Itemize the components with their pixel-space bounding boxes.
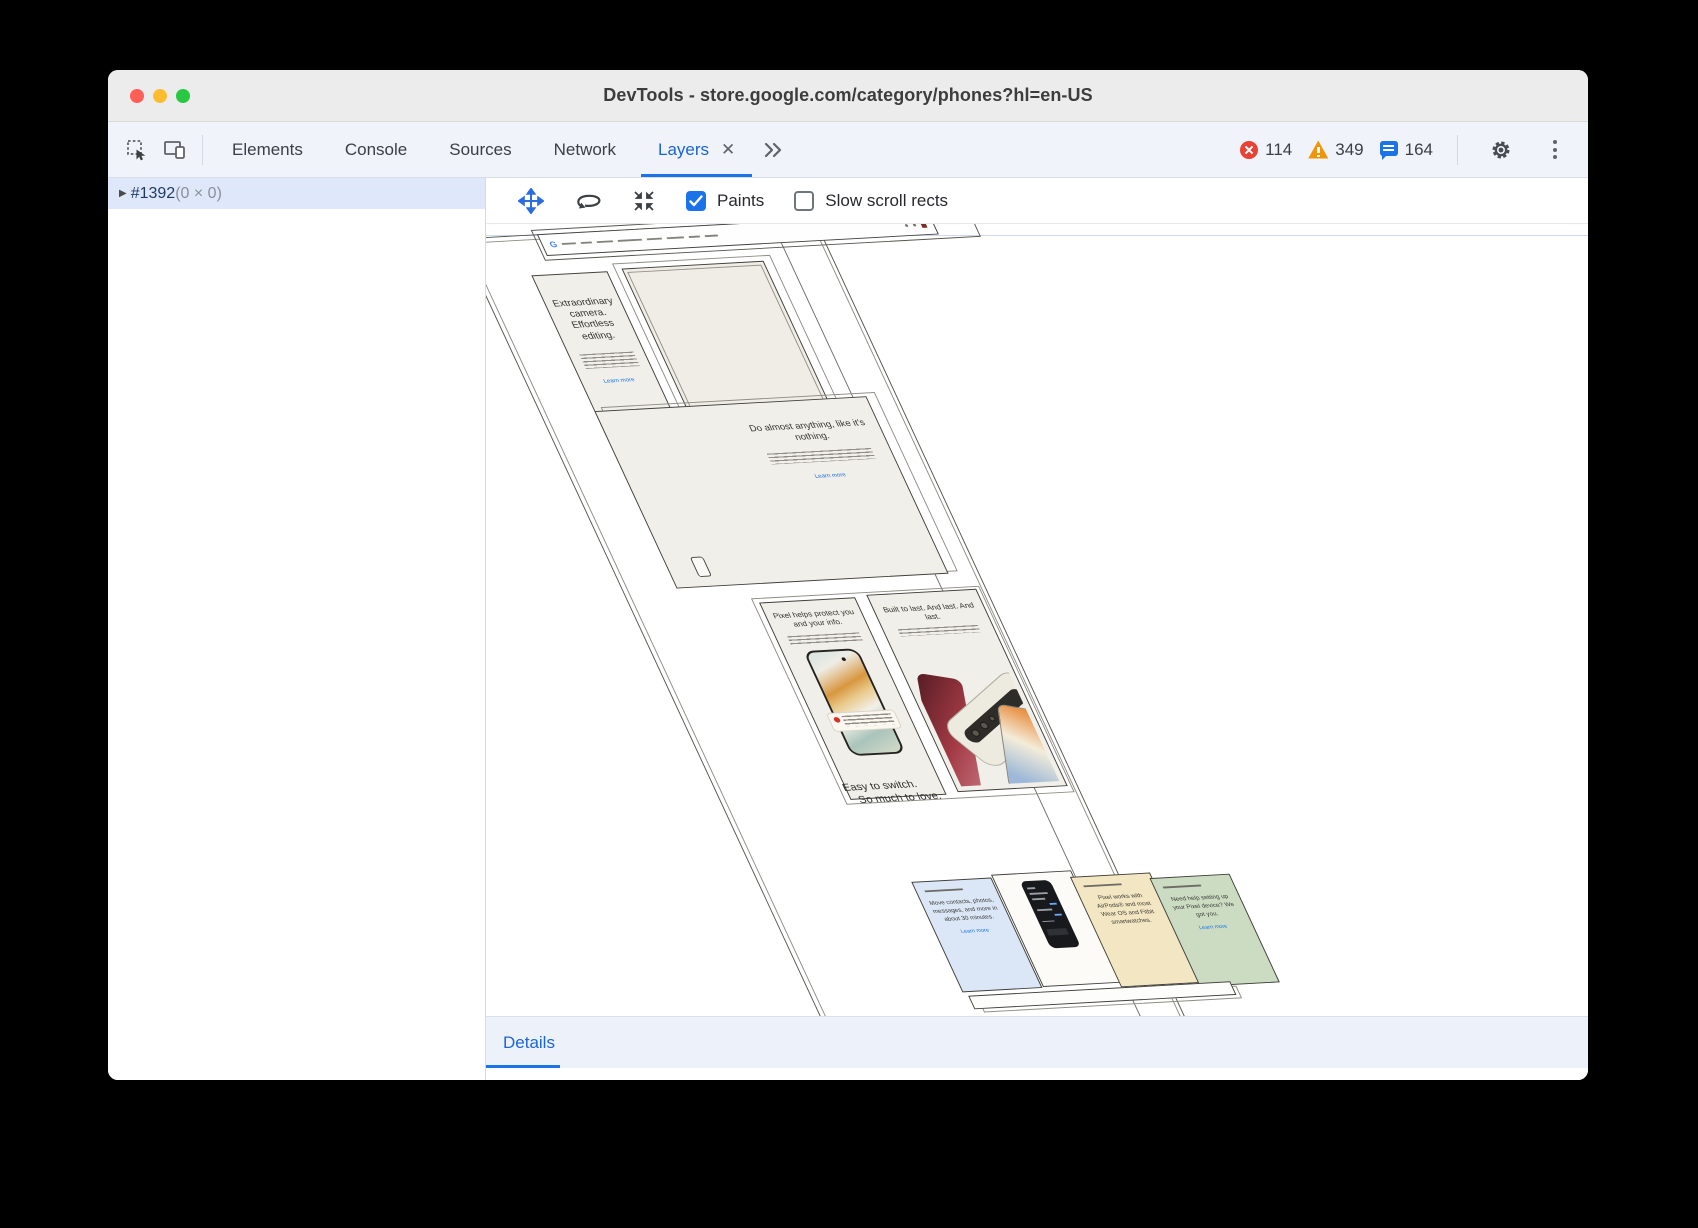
- window-title: DevTools - store.google.com/category/pho…: [603, 85, 1092, 106]
- built-card-bodytext: [897, 624, 980, 636]
- close-tab-icon[interactable]: ✕: [721, 140, 735, 160]
- message-icon: [1380, 141, 1398, 156]
- details-tab-underline: [486, 1065, 560, 1068]
- badges-divider: [1457, 135, 1458, 165]
- reset-view-icon[interactable]: [632, 189, 656, 213]
- minimize-window-button[interactable]: [153, 89, 167, 103]
- protect-card-heading: Pixel helps protect you and your info.: [770, 608, 862, 630]
- warning-count: 349: [1335, 140, 1363, 160]
- camera-card-link: Learn more: [587, 376, 652, 385]
- error-badge[interactable]: 114: [1240, 140, 1292, 160]
- transfer-phone-screen: [1020, 880, 1081, 949]
- layers-panel: ▶ #1392(0 × 0): [108, 178, 1588, 1080]
- layer-id: #1392: [131, 185, 176, 203]
- switch-green-body: Need help setting up your Pixel device? …: [1165, 893, 1242, 921]
- built-card-heading: Built to last. And last. And last.: [879, 601, 983, 624]
- error-count: 114: [1265, 140, 1292, 160]
- settings-gear-icon[interactable]: [1482, 131, 1520, 169]
- message-count: 164: [1405, 140, 1433, 160]
- avatar: [919, 224, 927, 228]
- device-toolbar-icon[interactable]: [156, 131, 194, 169]
- camera-card-bodytext: [579, 351, 640, 368]
- switch-blue-body: Move contacts, photos, messages, and mor…: [927, 897, 1004, 925]
- alert-dot-icon: [833, 717, 842, 723]
- security-notification: [825, 709, 902, 732]
- error-icon: [1240, 141, 1258, 159]
- title-bar: DevTools - store.google.com/category/pho…: [108, 70, 1588, 122]
- tab-console[interactable]: Console: [324, 122, 428, 177]
- details-bar: Details: [486, 1016, 1588, 1068]
- switch-blue-minihead: [924, 888, 963, 892]
- switch-green-link: Learn more: [1179, 923, 1248, 934]
- layers-3d-canvas[interactable]: G Extraordinary camer: [486, 224, 1588, 1016]
- zoom-window-button[interactable]: [176, 89, 190, 103]
- warning-icon: [1308, 141, 1328, 159]
- rotate-mode-icon[interactable]: [574, 190, 602, 212]
- search-icon: [904, 224, 908, 227]
- camera-card-heading: Extraordinary camera. Effortless editing…: [550, 296, 632, 344]
- inspect-element-icon[interactable]: [118, 131, 156, 169]
- switch-tan-body: Pixel works with AirPods® and most Wear …: [1086, 892, 1167, 928]
- switch-tan-minihead: [1083, 883, 1122, 887]
- protect-card-bodytext: [787, 632, 864, 646]
- switch-green-minihead: [1163, 885, 1202, 889]
- paints-checkbox[interactable]: Paints: [686, 191, 764, 211]
- bottom-strip: [486, 1068, 1588, 1080]
- traffic-lights: [130, 70, 190, 122]
- phone-camera-dot: [841, 657, 847, 661]
- warning-badge[interactable]: 349: [1308, 140, 1363, 160]
- cart-icon: [912, 224, 916, 226]
- tab-details[interactable]: Details: [486, 1033, 555, 1053]
- anything-card-bodytext: [767, 448, 876, 465]
- devtools-tab-bar: Elements Console Sources Network Layers …: [108, 122, 1588, 178]
- layers-view-toolbar: Paints Slow scroll rects: [486, 178, 1588, 224]
- tab-network[interactable]: Network: [533, 122, 637, 177]
- more-tabs-icon[interactable]: [756, 131, 790, 169]
- paints-checkbox-box[interactable]: [686, 191, 706, 211]
- slow-scroll-label: Slow scroll rects: [825, 191, 948, 211]
- pan-mode-icon[interactable]: [518, 188, 544, 214]
- layer-tree-item[interactable]: ▶ #1392(0 × 0): [108, 178, 485, 209]
- mini-phone-outline: [690, 556, 712, 577]
- layers-3d-scene: G Extraordinary camer: [508, 224, 1588, 1016]
- layer-size: (0 × 0): [175, 185, 222, 203]
- kebab-menu-icon[interactable]: [1536, 131, 1574, 169]
- status-badges: 114 349 164: [1240, 131, 1574, 169]
- expand-triangle-icon[interactable]: ▶: [119, 188, 127, 199]
- close-window-button[interactable]: [130, 89, 144, 103]
- message-badge[interactable]: 164: [1380, 140, 1433, 160]
- switch-blue-link: Learn more: [941, 927, 1010, 938]
- tab-sources[interactable]: Sources: [428, 122, 532, 177]
- slow-scroll-checkbox-box[interactable]: [794, 191, 814, 211]
- google-logo: G: [548, 240, 559, 249]
- anything-card-link: Learn more: [769, 470, 892, 482]
- paints-label: Paints: [717, 191, 764, 211]
- tab-elements[interactable]: Elements: [211, 122, 324, 177]
- devtools-window: DevTools - store.google.com/category/pho…: [108, 70, 1588, 1080]
- toolbar-divider: [202, 135, 203, 165]
- tab-layers[interactable]: Layers ✕: [637, 122, 756, 177]
- anything-card-heading: Do almost anything, like it's nothing.: [745, 418, 875, 446]
- layers-tree-sidebar: ▶ #1392(0 × 0): [108, 178, 486, 1080]
- active-tab-underline: [641, 174, 752, 177]
- slow-scroll-rects-checkbox[interactable]: Slow scroll rects: [794, 191, 948, 211]
